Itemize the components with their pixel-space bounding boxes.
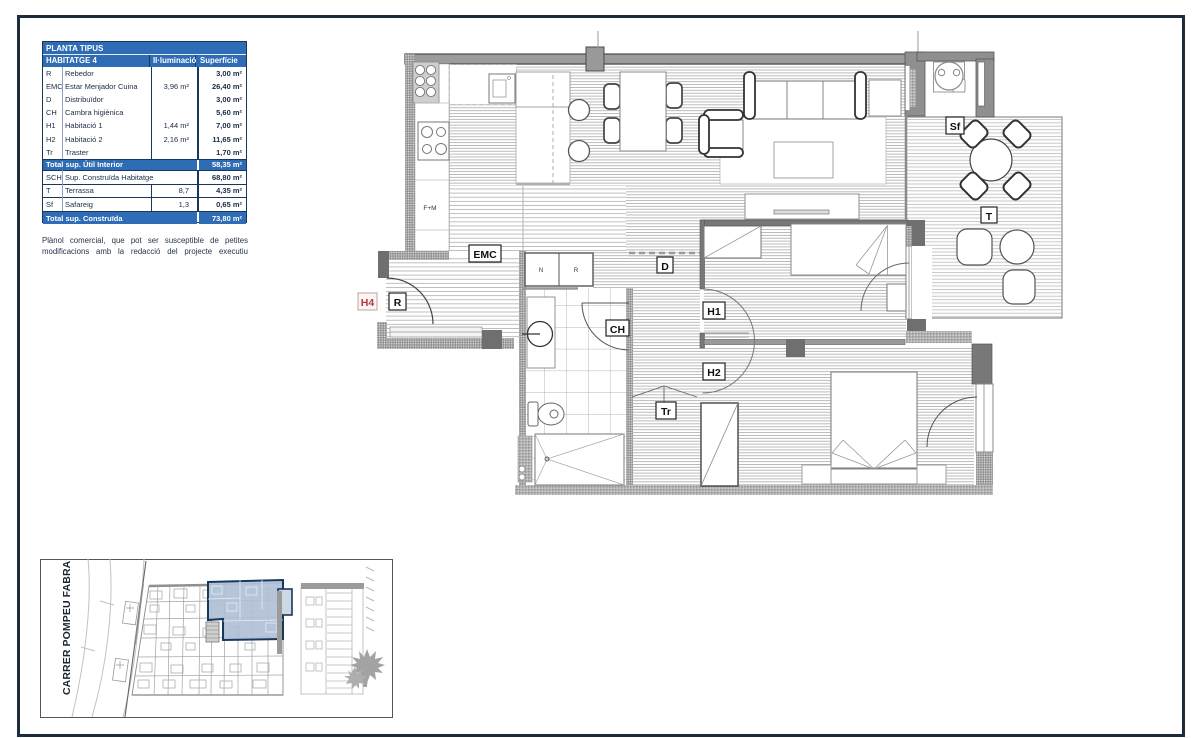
svg-text:F+M: F+M	[423, 205, 436, 212]
svg-text:H4: H4	[361, 297, 375, 309]
svg-text:CARRER POMPEU FABRA: CARRER POMPEU FABRA	[61, 560, 73, 695]
svg-text:N: N	[539, 268, 543, 274]
svg-text:R: R	[574, 268, 579, 274]
svg-text:Tr: Tr	[661, 406, 671, 418]
svg-text:D: D	[661, 261, 669, 273]
svg-text:CH: CH	[610, 324, 625, 336]
svg-text:EMC: EMC	[473, 249, 497, 261]
svg-text:H2: H2	[707, 367, 721, 379]
svg-text:T: T	[986, 211, 993, 223]
svg-text:Sf: Sf	[950, 121, 961, 133]
svg-text:H1: H1	[707, 306, 721, 318]
svg-text:R: R	[394, 297, 402, 309]
